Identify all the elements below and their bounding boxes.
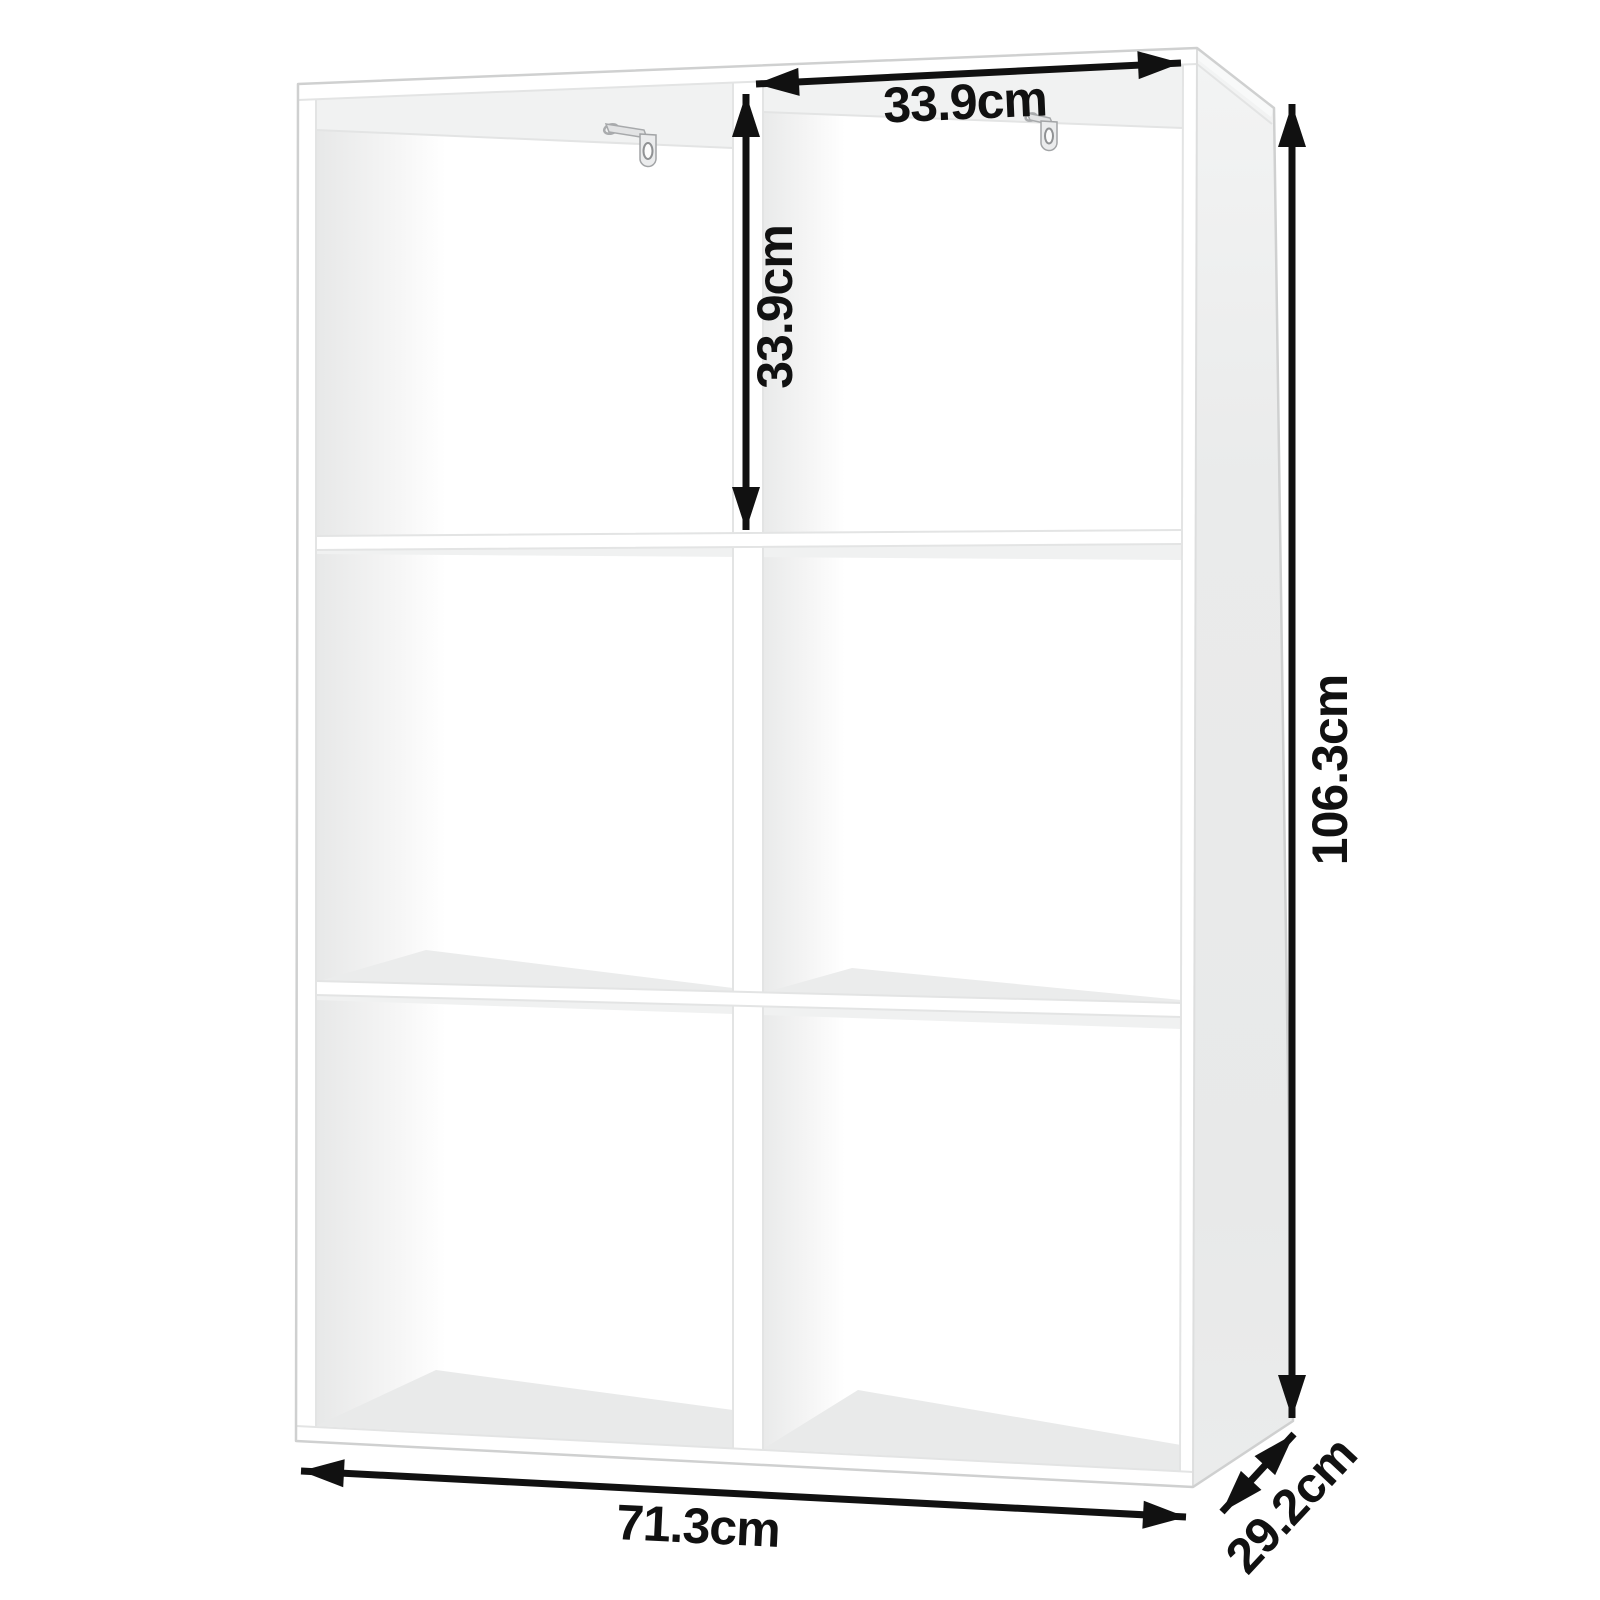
dimension-label-compartment-width: 33.9cm [882,70,1048,133]
side-panel [1193,48,1293,1487]
left-inner-wall-shade [316,99,446,1430]
dimension-label-total-width: 71.3cm [615,1494,781,1558]
shelf-dimension-drawing: 33.9cm 33.9cm 106.3cm 71.3cm 29.2cm [0,0,1600,1600]
bracket-slot-hole [644,143,653,159]
dimension-label-compartment-height: 33.9cm [747,225,803,389]
dimension-total-height: 106.3cm [1292,104,1358,1418]
left-side-board [296,84,316,1441]
dimension-label-total-height: 106.3cm [1302,675,1358,865]
dimension-diagram: 33.9cm 33.9cm 106.3cm 71.3cm 29.2cm [0,0,1600,1600]
bracket-slot-hole [1045,129,1053,144]
dimension-total-width: 71.3cm [301,1471,1186,1558]
